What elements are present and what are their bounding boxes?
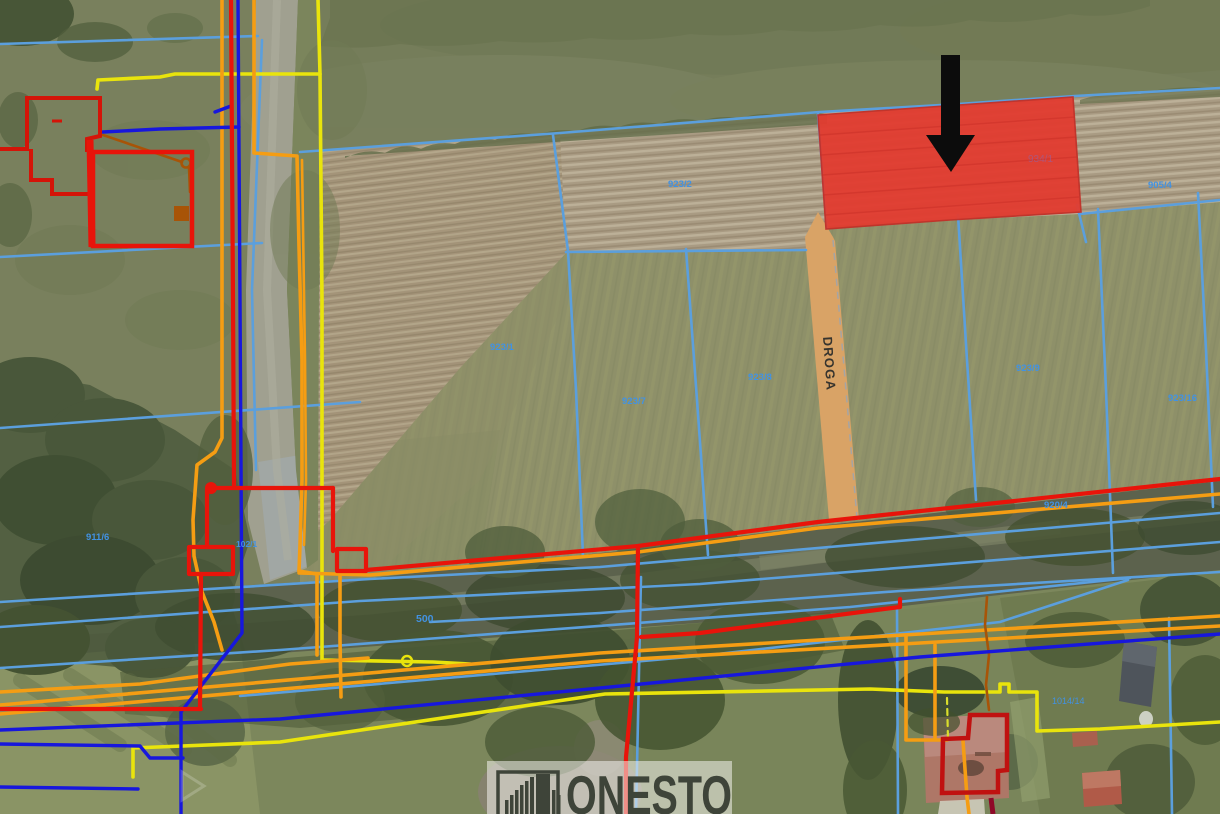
svg-text:934/1: 934/1 — [1028, 154, 1053, 165]
svg-text:923/2: 923/2 — [668, 179, 692, 190]
svg-text:923/8: 923/8 — [748, 372, 772, 383]
svg-text:923/9: 923/9 — [1016, 363, 1040, 374]
svg-text:102/1: 102/1 — [236, 539, 258, 549]
svg-text:905/4: 905/4 — [1148, 180, 1172, 191]
svg-text:923/1: 923/1 — [490, 342, 514, 353]
svg-text:500: 500 — [416, 613, 434, 625]
svg-text:920/4: 920/4 — [1044, 500, 1068, 511]
svg-text:1014/14: 1014/14 — [1052, 696, 1085, 706]
svg-text:911/6: 911/6 — [86, 532, 109, 543]
svg-text:ONESTO: ONESTO — [566, 764, 732, 814]
svg-text:923/16: 923/16 — [1168, 393, 1197, 404]
svg-text:923/7: 923/7 — [622, 396, 646, 407]
